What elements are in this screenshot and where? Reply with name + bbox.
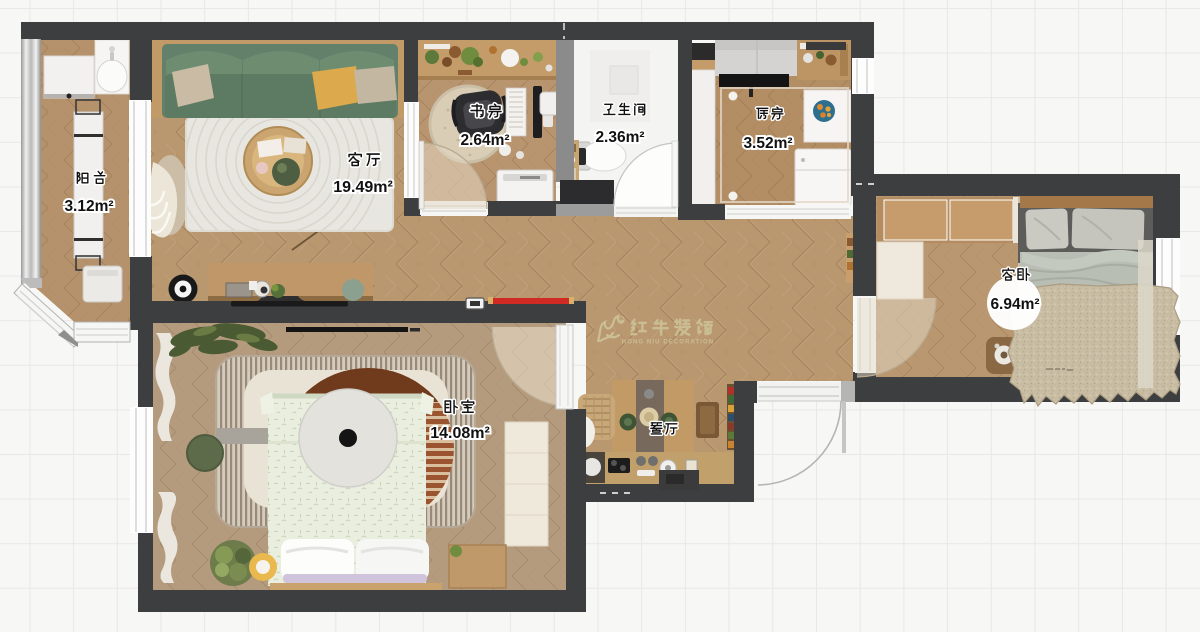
svg-text:6.94m²: 6.94m² xyxy=(990,296,1039,313)
svg-text:2.64m²: 2.64m² xyxy=(460,132,509,149)
svg-text:3.52m²: 3.52m² xyxy=(743,135,792,152)
svg-text:19.49m²: 19.49m² xyxy=(333,179,393,196)
svg-text:14.08m²: 14.08m² xyxy=(430,425,490,442)
svg-text:HONG NIU DECORATION: HONG NIU DECORATION xyxy=(622,340,714,346)
svg-text:3.12m²: 3.12m² xyxy=(64,198,113,215)
svg-text:2.36m²: 2.36m² xyxy=(595,129,644,146)
